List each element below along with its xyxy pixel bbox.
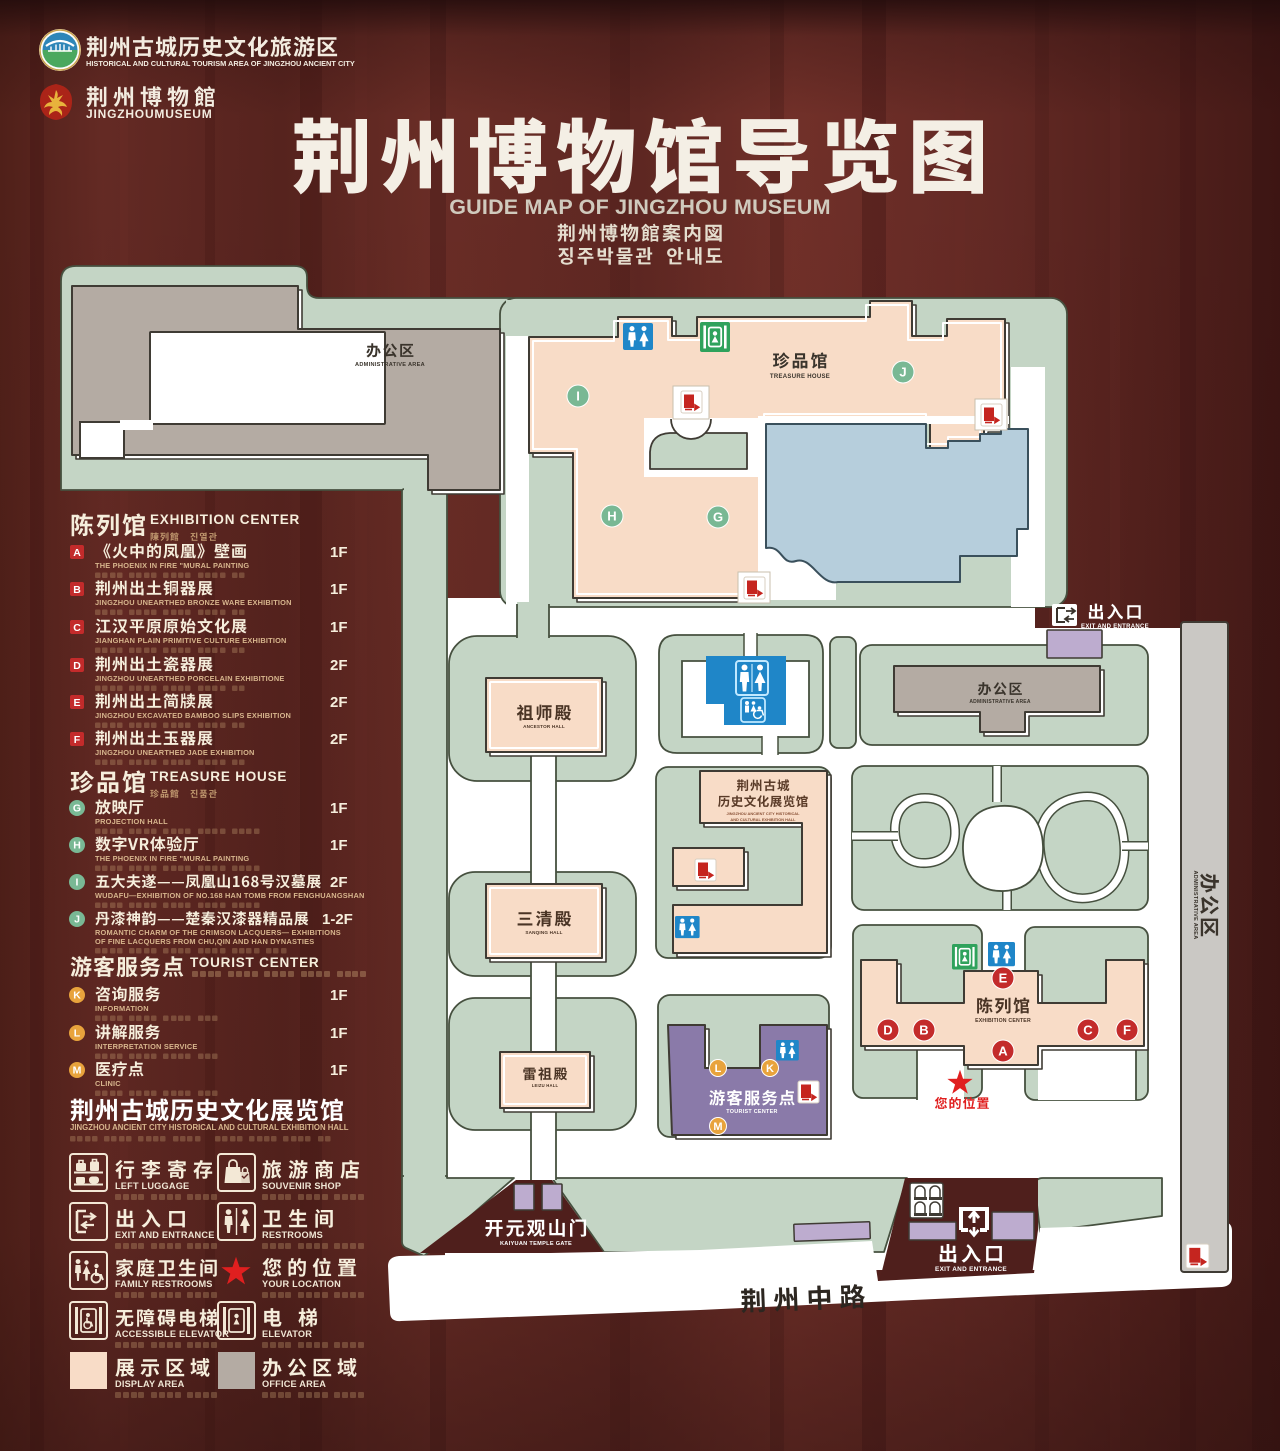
svg-text:1F: 1F xyxy=(330,1062,348,1079)
svg-text:LEIZU HALL: LEIZU HALL xyxy=(532,1083,559,1088)
svg-text:C: C xyxy=(1083,1023,1093,1038)
svg-text:TREASURE HOUSE: TREASURE HOUSE xyxy=(150,769,287,784)
svg-text:EXIT AND ENTRANCE: EXIT AND ENTRANCE xyxy=(935,1266,1007,1273)
svg-text:JINGZHOU EXCAVATED BAMBOO SLIP: JINGZHOU EXCAVATED BAMBOO SLIPS EXHIBITI… xyxy=(95,711,291,720)
svg-text:FAMILY RESTROOMS: FAMILY RESTROOMS xyxy=(115,1279,213,1289)
svg-text:B: B xyxy=(73,584,81,596)
svg-text:HISTORICAL AND CULTURAL TOURIS: HISTORICAL AND CULTURAL TOURISM AREA OF … xyxy=(86,59,355,68)
svg-text:H: H xyxy=(73,840,81,852)
svg-text:ADMINISTRATIVE AREA: ADMINISTRATIVE AREA xyxy=(355,362,425,368)
svg-text:KAIYUAN TEMPLE GATE: KAIYUAN TEMPLE GATE xyxy=(500,1241,572,1247)
svg-text:E: E xyxy=(73,697,80,709)
svg-text:LEFT LUGGAGE: LEFT LUGGAGE xyxy=(115,1181,189,1191)
svg-text:G: G xyxy=(713,510,723,525)
svg-text:DISPLAY AREA: DISPLAY AREA xyxy=(115,1379,185,1389)
svg-text:L: L xyxy=(74,1028,81,1040)
svg-text:J: J xyxy=(74,914,80,926)
svg-text:M: M xyxy=(73,1065,82,1077)
svg-text:1F: 1F xyxy=(330,1025,348,1042)
svg-text:PROJECTION HALL: PROJECTION HALL xyxy=(95,817,168,826)
svg-text:D: D xyxy=(883,1023,892,1038)
svg-text:TREASURE HOUSE: TREASURE HOUSE xyxy=(770,374,830,380)
svg-text:K: K xyxy=(73,990,81,1002)
svg-text:EXHIBITION CENTER: EXHIBITION CENTER xyxy=(150,512,300,527)
svg-text:A: A xyxy=(73,547,81,559)
svg-text:J: J xyxy=(899,365,906,380)
svg-text:1F: 1F xyxy=(330,800,348,817)
svg-text:A: A xyxy=(998,1044,1008,1059)
svg-text:JINGZHOU UNEARTHED JADE EXHIBI: JINGZHOU UNEARTHED JADE EXHIBITION xyxy=(95,748,255,757)
svg-text:JINGZHOU ANCIENT CITY HISTORIC: JINGZHOU ANCIENT CITY HISTORICAL xyxy=(727,811,801,816)
svg-text:I: I xyxy=(576,389,580,404)
svg-text:2F: 2F xyxy=(330,694,348,711)
svg-text:TOURIST CENTER: TOURIST CENTER xyxy=(726,1109,777,1115)
svg-text:I: I xyxy=(76,877,79,889)
svg-text:OF FINE LACQUERS FROM CHU,QIN: OF FINE LACQUERS FROM CHU,QIN AND HAN DY… xyxy=(95,937,314,946)
svg-text:1F: 1F xyxy=(330,544,348,561)
svg-text:GUIDE MAP OF JINGZHOU MUSEUM: GUIDE MAP OF JINGZHOU MUSEUM xyxy=(449,195,830,219)
svg-text:SOUVENIR SHOP: SOUVENIR SHOP xyxy=(262,1181,341,1191)
svg-text:THE PHOENIX IN FIRE "MURAL PAI: THE PHOENIX IN FIRE "MURAL PAINTING xyxy=(95,561,249,570)
svg-text:OFFICE AREA: OFFICE AREA xyxy=(262,1379,326,1389)
svg-text:EXIT AND ENTRANCE: EXIT AND ENTRANCE xyxy=(1081,624,1149,630)
svg-text:EXHIBITION CENTER: EXHIBITION CENTER xyxy=(975,1018,1031,1024)
svg-text:D: D xyxy=(73,660,81,672)
svg-text:ADMINISTRATIVE AREA: ADMINISTRATIVE AREA xyxy=(1192,871,1198,940)
svg-text:TOURIST CENTER: TOURIST CENTER xyxy=(190,955,319,970)
svg-text:M: M xyxy=(713,1121,722,1133)
svg-text:AND CULTURAL EXHIBITION HALL: AND CULTURAL EXHIBITION HALL xyxy=(730,817,796,822)
svg-text:RESTROOMS: RESTROOMS xyxy=(262,1230,323,1240)
svg-text:JIANGHAN PLAIN PRIMITIVE CULTU: JIANGHAN PLAIN PRIMITIVE CULTURE EXHIBIT… xyxy=(95,636,287,645)
svg-text:E: E xyxy=(999,971,1008,986)
svg-text:ADMINISTRATIVE AREA: ADMINISTRATIVE AREA xyxy=(969,699,1030,705)
svg-text:2F: 2F xyxy=(330,731,348,748)
svg-text:1F: 1F xyxy=(330,987,348,1004)
svg-text:JINGZHOU ANCIENT CITY HISTORIC: JINGZHOU ANCIENT CITY HISTORICAL AND CUL… xyxy=(70,1123,349,1132)
svg-text:G: G xyxy=(73,803,81,815)
svg-text:ROMANTIC CHARM OF THE CRIMSON: ROMANTIC CHARM OF THE CRIMSON LACQUERS— … xyxy=(95,928,341,937)
svg-text:INFORMATION: INFORMATION xyxy=(95,1004,149,1013)
svg-text:2F: 2F xyxy=(330,874,348,891)
svg-text:JINGZHOU UNEARTHED BRONZE WARE: JINGZHOU UNEARTHED BRONZE WARE EXHIBITIO… xyxy=(95,598,292,607)
svg-text:THE PHOENIX IN FIRE "MURAL PAI: THE PHOENIX IN FIRE "MURAL PAINTING xyxy=(95,854,249,863)
svg-text:F: F xyxy=(1123,1023,1131,1038)
svg-text:JINGZHOU UNEARTHED PORCELAIN E: JINGZHOU UNEARTHED PORCELAIN EXHIBITIONE xyxy=(95,674,285,683)
svg-text:CLINIC: CLINIC xyxy=(95,1079,121,1088)
svg-text:L: L xyxy=(715,1063,722,1075)
svg-text:ANCESTOR HALL: ANCESTOR HALL xyxy=(523,724,565,729)
svg-text:ELEVATOR: ELEVATOR xyxy=(262,1329,312,1339)
svg-text:YOUR LOCATION: YOUR LOCATION xyxy=(262,1279,341,1289)
svg-text:1-2F: 1-2F xyxy=(322,911,353,928)
svg-text:1F: 1F xyxy=(330,581,348,598)
svg-text:WUDAFU—EXHIBITION OF NO.168 HA: WUDAFU—EXHIBITION OF NO.168 HAN TOMB FRO… xyxy=(95,891,365,900)
svg-text:C: C xyxy=(73,622,81,634)
svg-text:1F: 1F xyxy=(330,619,348,636)
svg-text:H: H xyxy=(607,509,616,524)
svg-text:EXIT AND ENTRANCE: EXIT AND ENTRANCE xyxy=(115,1230,215,1240)
svg-text:ACCESSIBLE ELEVATOR: ACCESSIBLE ELEVATOR xyxy=(115,1329,229,1339)
svg-text:B: B xyxy=(919,1023,928,1038)
svg-text:INTERPRETATION SERVICE: INTERPRETATION SERVICE xyxy=(95,1042,198,1051)
svg-text:JINGZHOUMUSEUM: JINGZHOUMUSEUM xyxy=(86,107,213,121)
svg-text:2F: 2F xyxy=(330,657,348,674)
svg-text:SANQING HALL: SANQING HALL xyxy=(525,930,562,935)
svg-text:K: K xyxy=(766,1063,774,1075)
svg-text:F: F xyxy=(74,734,81,746)
svg-text:1F: 1F xyxy=(330,837,348,854)
